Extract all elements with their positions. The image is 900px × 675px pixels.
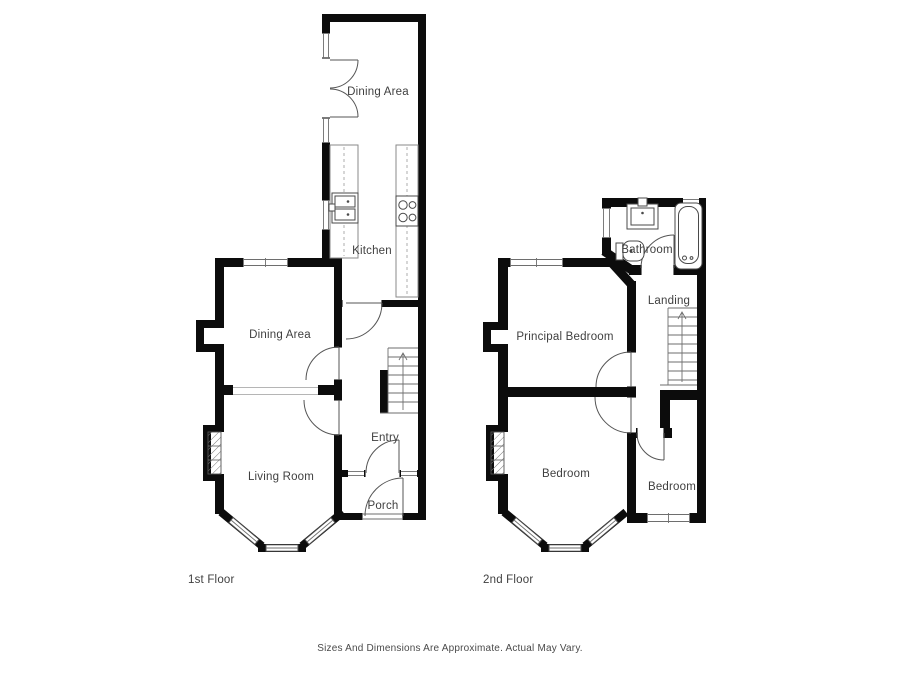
room-label-wing-dining: Dining Area xyxy=(347,86,409,98)
stairs-up-arrow-icon xyxy=(678,312,686,382)
floorplan-page: Dining Area Kitchen Dining Area Living R… xyxy=(0,0,900,675)
second-floor-stairs-icon xyxy=(660,308,697,385)
room-label-bedroom-mid: Bedroom xyxy=(542,468,590,480)
floor2-title: 2nd Floor xyxy=(483,574,533,586)
room-label-kitchen: Kitchen xyxy=(352,245,392,257)
second-floor-plan: Bathroom Landing Principal Bedroom Bedro… xyxy=(483,198,706,586)
room-label-bedroom-small: Bedroom xyxy=(648,481,696,493)
stairs-up-arrow-icon xyxy=(399,353,407,410)
open-divider xyxy=(233,388,318,395)
room-label-living: Living Room xyxy=(248,471,314,483)
first-floor-doors xyxy=(304,58,403,516)
living-fireplace-icon xyxy=(208,432,221,474)
bedroom-fireplace-icon xyxy=(491,432,504,474)
kitchen-sink-icon xyxy=(329,193,358,223)
disclaimer-text: Sizes And Dimensions Are Approximate. Ac… xyxy=(317,643,583,654)
floorplan-drawing: Dining Area Kitchen Dining Area Living R… xyxy=(0,0,900,675)
first-floor-plan: Dining Area Kitchen Dining Area Living R… xyxy=(188,14,426,586)
room-label-principal: Principal Bedroom xyxy=(516,331,613,343)
room-label-porch: Porch xyxy=(367,500,398,512)
kitchen-hob-icon xyxy=(396,196,418,226)
room-label-bathroom: Bathroom xyxy=(621,244,672,256)
bathtub-icon xyxy=(675,203,702,269)
room-label-dining: Dining Area xyxy=(249,329,311,341)
room-label-entry: Entry xyxy=(371,432,399,444)
room-label-landing: Landing xyxy=(648,295,690,307)
floor1-title: 1st Floor xyxy=(188,574,235,586)
